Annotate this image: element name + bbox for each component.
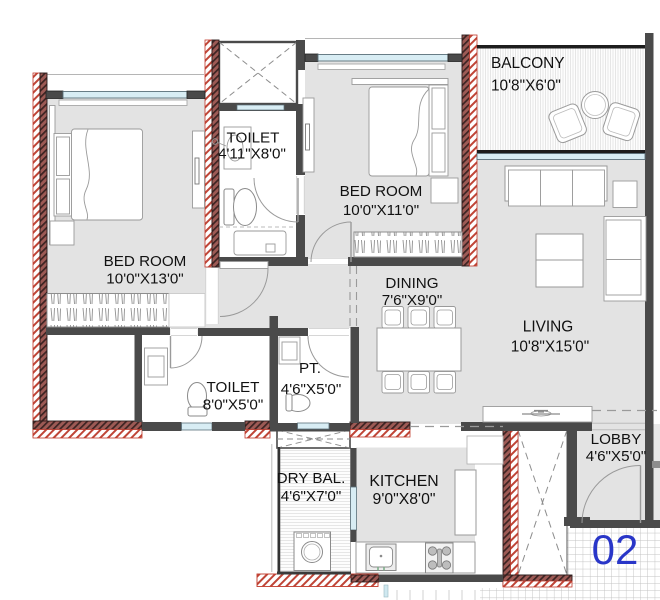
- svg-text:PT.: PT.: [299, 360, 321, 377]
- svg-text:10'8"X6'0": 10'8"X6'0": [491, 78, 561, 95]
- svg-text:10'0"X13'0": 10'0"X13'0": [106, 271, 183, 288]
- svg-text:KITCHEN: KITCHEN: [369, 473, 438, 490]
- svg-text:TOILET: TOILET: [207, 379, 260, 396]
- svg-text:DRY BAL.: DRY BAL.: [277, 470, 346, 487]
- svg-text:8'0"X5'0": 8'0"X5'0": [203, 397, 264, 414]
- svg-text:4'6"X5'0": 4'6"X5'0": [586, 448, 647, 465]
- svg-text:4'6"X5'0": 4'6"X5'0": [281, 381, 342, 398]
- svg-text:BALCONY: BALCONY: [491, 55, 565, 72]
- svg-text:02: 02: [592, 526, 639, 573]
- svg-text:BED ROOM: BED ROOM: [340, 183, 423, 200]
- svg-text:LIVING: LIVING: [523, 319, 573, 336]
- svg-text:DINING: DINING: [385, 275, 438, 292]
- svg-text:4'11"X8'0": 4'11"X8'0": [218, 146, 286, 163]
- svg-text:TOILET: TOILET: [227, 130, 280, 147]
- svg-text:9'0"X8'0": 9'0"X8'0": [373, 491, 436, 508]
- svg-text:LOBBY: LOBBY: [591, 431, 642, 448]
- svg-text:BED ROOM: BED ROOM: [104, 253, 187, 270]
- svg-text:4'6"X7'0": 4'6"X7'0": [281, 488, 342, 505]
- svg-text:10'0"X11'0": 10'0"X11'0": [343, 202, 419, 219]
- svg-text:10'8"X15'0": 10'8"X15'0": [511, 339, 589, 356]
- svg-text:7'6"X9'0": 7'6"X9'0": [382, 292, 443, 309]
